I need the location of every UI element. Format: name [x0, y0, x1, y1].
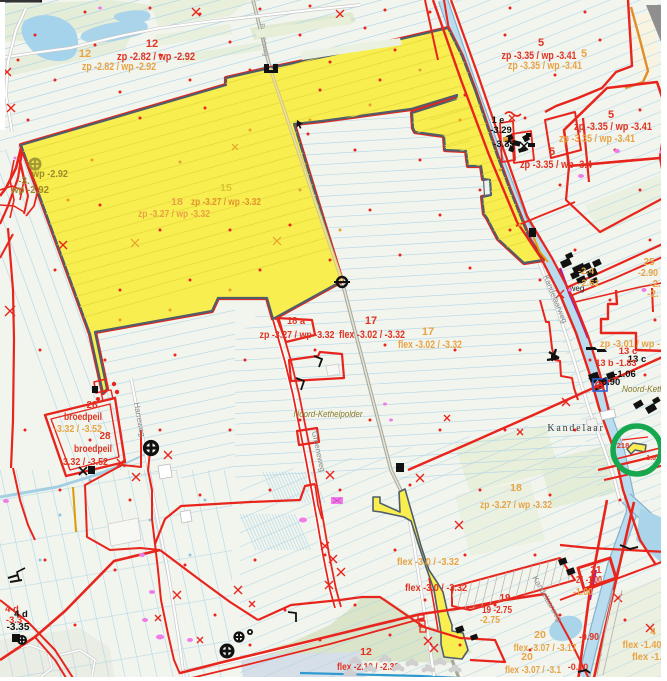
svg-text:weg: weg — [569, 284, 585, 293]
svg-text:4: 4 — [650, 627, 656, 638]
svg-text:zp -3.35 / wp -3.4: zp -3.35 / wp -3.4 — [520, 159, 593, 171]
svg-text:19: 19 — [499, 593, 511, 604]
svg-text:218: 218 — [617, 441, 630, 450]
svg-text:flex -3.0 / -3.32: flex -3.0 / -3.32 — [405, 582, 467, 594]
svg-text:-3.29: -3.29 — [490, 125, 512, 136]
svg-text:17: 17 — [422, 326, 434, 338]
svg-text:13 b -1.83: 13 b -1.83 — [595, 358, 636, 368]
svg-text:zp -3.27 / wp -3.32: zp -3.27 / wp -3.32 — [138, 208, 210, 220]
svg-text:-3.35: -3.35 — [7, 622, 30, 633]
svg-text:zp -2.82 / wp -2.92: zp -2.82 / wp -2.92 — [82, 61, 156, 73]
svg-text:15: 15 — [220, 182, 232, 194]
svg-text:-3.32 / -3.52: -3.32 / -3.52 — [60, 457, 108, 468]
svg-text:-2.90: -2.90 — [638, 268, 658, 279]
svg-text:-1.0: -1.0 — [644, 455, 656, 462]
svg-text:20: 20 — [521, 651, 533, 663]
svg-text:flex -3.02 / -3.32: flex -3.02 / -3.32 — [398, 339, 462, 351]
svg-text:flex -1.40: flex -1.40 — [623, 640, 662, 651]
svg-text:-0.90: -0.90 — [579, 632, 599, 643]
svg-text:zp -3.35 / wp -3.41: zp -3.35 / wp -3.41 — [574, 121, 652, 133]
svg-text:18: 18 — [171, 196, 183, 208]
svg-text:-3.32 / -3.52: -3.32 / -3.52 — [54, 424, 102, 435]
svg-text:20: 20 — [534, 629, 546, 641]
svg-text:Noord-Keth: Noord-Keth — [622, 384, 664, 395]
svg-text:18 a: 18 a — [287, 315, 305, 327]
svg-text:zp -3.35 / wp -3.41: zp -3.35 / wp -3.41 — [559, 133, 635, 145]
svg-text:flex -3.0 / -3.32: flex -3.0 / -3.32 — [397, 556, 459, 568]
svg-text:wp -2.92: wp -2.92 — [10, 184, 49, 196]
svg-text:5: 5 — [538, 37, 544, 49]
svg-text:-2.4: -2.4 — [578, 266, 595, 277]
svg-text:zp -3.35 / wp -3.41: zp -3.35 / wp -3.41 — [508, 60, 582, 72]
svg-text:5: 5 — [608, 109, 614, 121]
svg-text:Noord-Kethelpolder: Noord-Kethelpolder — [294, 409, 364, 420]
svg-text:zp -3.01 / wp -: zp -3.01 / wp - — [600, 339, 660, 350]
svg-text:flex -3.07 / -3.1: flex -3.07 / -3.1 — [505, 664, 561, 676]
svg-text:25: 25 — [643, 257, 655, 268]
svg-text:28: 28 — [86, 400, 98, 411]
svg-text:17: 17 — [365, 315, 377, 327]
svg-text:-2.75: -2.75 — [480, 615, 500, 626]
svg-text:flex -1.: flex -1. — [632, 652, 662, 663]
svg-text:-2.: -2. — [647, 289, 659, 300]
svg-text:-1.00: -1.00 — [573, 587, 593, 598]
svg-text:wp -2.92: wp -2.92 — [31, 168, 68, 180]
svg-text:28: 28 — [99, 431, 111, 442]
svg-text:0.90: 0.90 — [602, 377, 621, 388]
svg-text:12: 12 — [79, 48, 91, 60]
svg-text:18: 18 — [510, 482, 522, 494]
svg-text:12: 12 — [146, 38, 158, 50]
svg-text:broedpeil: broedpeil — [64, 412, 102, 423]
svg-text:5: 5 — [581, 48, 587, 60]
svg-text:zp -3.27 / wp -3.32: zp -3.27 / wp -3.32 — [191, 196, 261, 208]
svg-text:-3.35: -3.35 — [493, 139, 515, 150]
svg-text:Kandelaar: Kandelaar — [547, 423, 604, 434]
svg-text:zp -3.27 / wp -3.32: zp -3.27 / wp -3.32 — [260, 329, 335, 341]
svg-text:zp -3.27 / wp -3.32: zp -3.27 / wp -3.32 — [480, 499, 552, 511]
svg-text:broedpeil: broedpeil — [74, 444, 112, 455]
svg-text:21 -1.00: 21 -1.00 — [576, 575, 602, 586]
svg-text:5: 5 — [549, 146, 555, 158]
svg-text:12: 12 — [360, 646, 372, 658]
svg-text:1 e: 1 e — [492, 115, 505, 125]
svg-text:flex -3.02 / -3.32: flex -3.02 / -3.32 — [339, 329, 405, 341]
